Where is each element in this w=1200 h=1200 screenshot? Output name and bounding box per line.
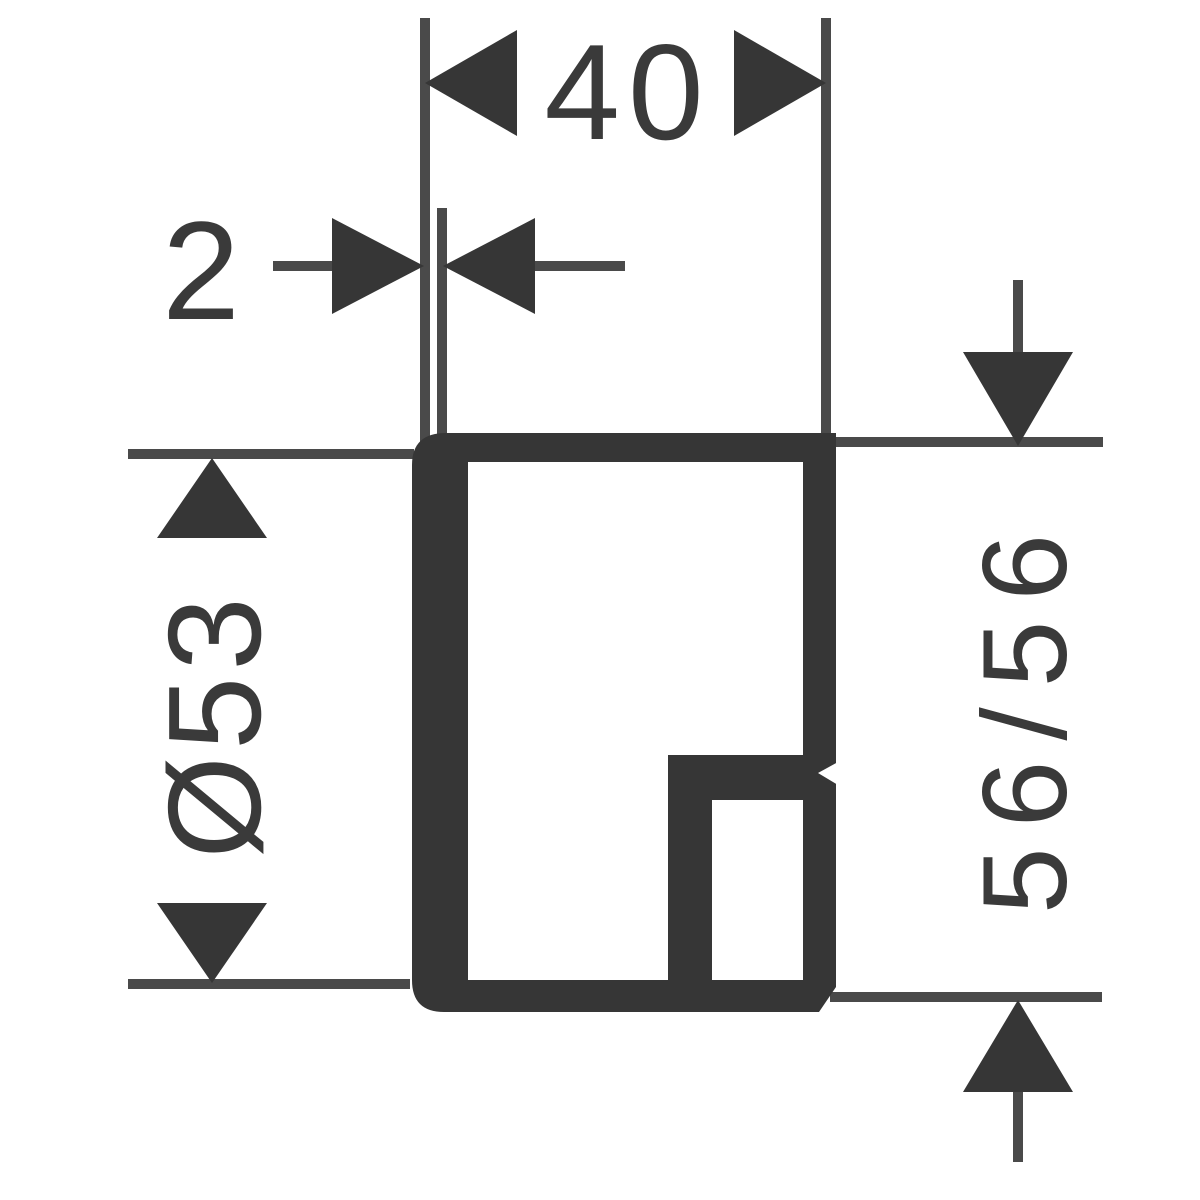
dim-depth-arrow-right-icon	[734, 30, 826, 136]
dim-face-value: 56/56	[958, 514, 1092, 914]
dim-depth-value: 40	[544, 16, 711, 168]
dimension-drawing-canvas: 40 2 Ø53 56/56	[0, 0, 1200, 1200]
dim-face-arrow-bottom-icon	[963, 1000, 1073, 1092]
dim-wall-arrow-left-icon	[332, 218, 424, 314]
dim-diameter-value: Ø53	[141, 591, 288, 859]
dim-depth-arrow-left-icon	[425, 30, 517, 136]
dim-diameter-arrow-bottom-icon	[157, 903, 267, 983]
dim-wall-value: 2	[162, 192, 240, 349]
dim-diameter-arrow-top-icon	[157, 458, 267, 538]
dim-face-arrow-top-icon	[963, 352, 1073, 446]
body-outline	[412, 433, 836, 1012]
dimension-drawing: 40 2 Ø53 56/56	[0, 0, 1200, 1200]
dim-wall-arrow-right-icon	[443, 218, 535, 314]
